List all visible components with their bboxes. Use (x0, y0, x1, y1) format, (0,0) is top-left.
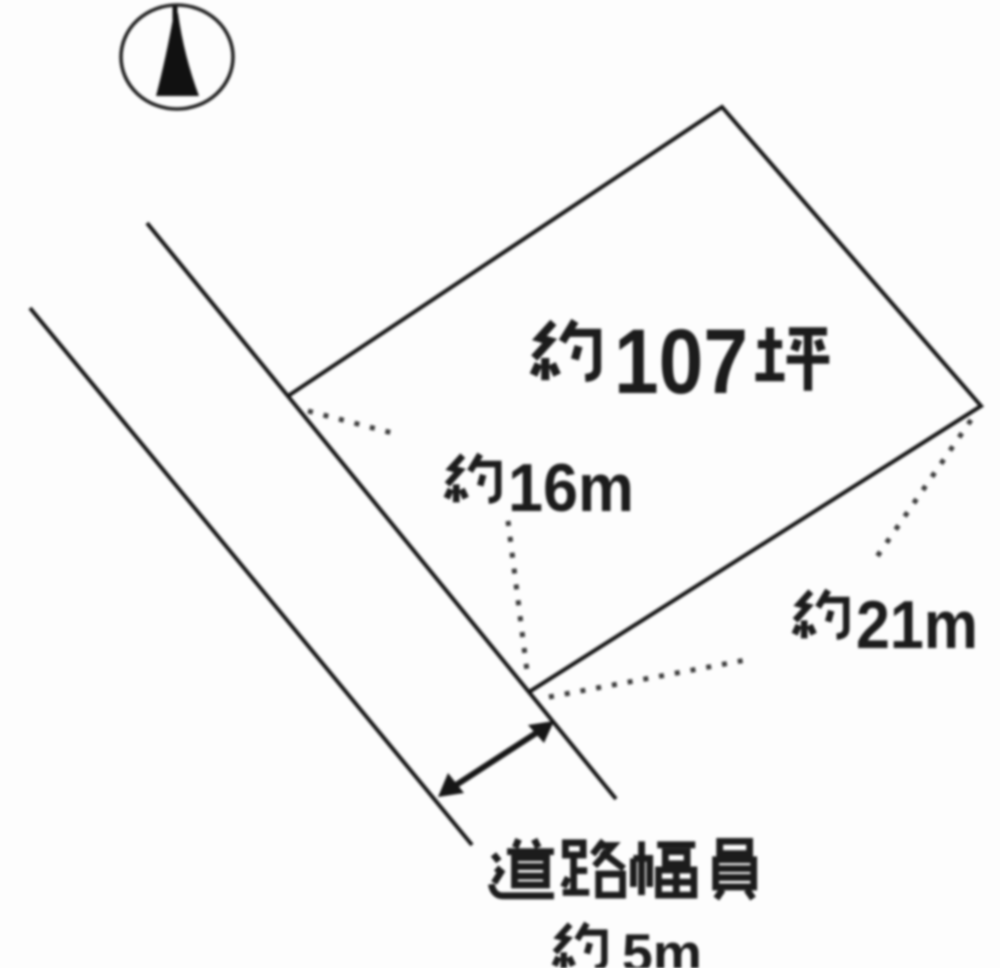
svg-text:16m: 16m (508, 450, 634, 526)
svg-text:107: 107 (614, 311, 748, 413)
svg-text:5m: 5m (622, 922, 702, 968)
svg-text:21m: 21m (856, 587, 978, 663)
